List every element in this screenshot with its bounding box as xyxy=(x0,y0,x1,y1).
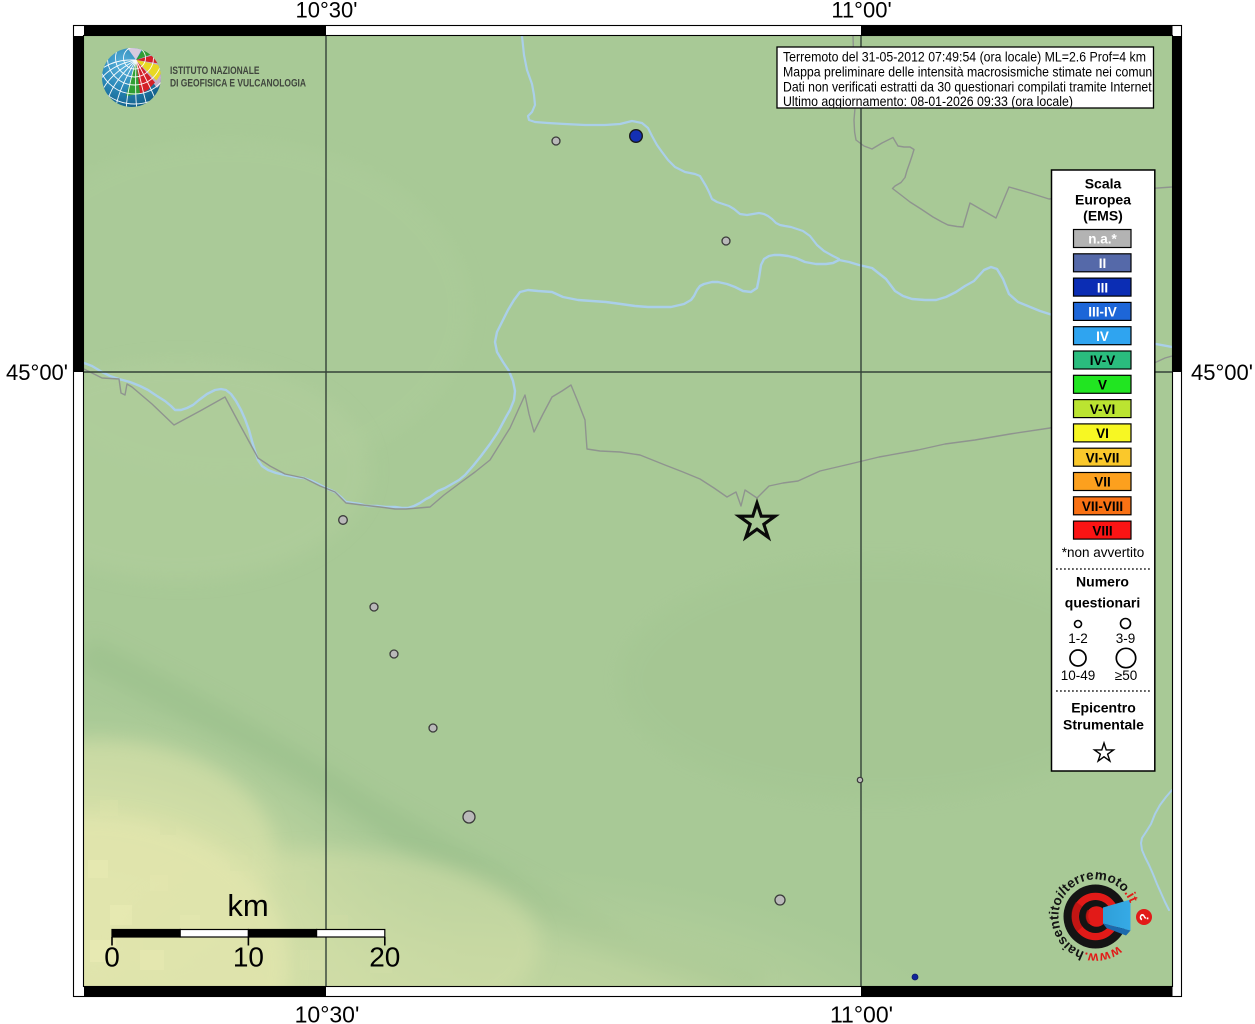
svg-text:Epicentro: Epicentro xyxy=(1071,700,1136,716)
svg-text:IV: IV xyxy=(1096,329,1109,344)
svg-text:11°00': 11°00' xyxy=(831,0,891,23)
svg-text:10: 10 xyxy=(233,942,264,973)
svg-text:10°30': 10°30' xyxy=(296,0,358,23)
svg-text:45°00': 45°00' xyxy=(1191,360,1253,385)
svg-text:1-2: 1-2 xyxy=(1068,631,1088,646)
svg-text:VII: VII xyxy=(1094,475,1111,490)
svg-text:Terremoto del 31-05-2012 07:49: Terremoto del 31-05-2012 07:49:54 (ora l… xyxy=(783,50,1146,65)
svg-text:DI GEOFISICA E VULCANOLOGIA: DI GEOFISICA E VULCANOLOGIA xyxy=(170,77,306,89)
svg-text:V-VI: V-VI xyxy=(1090,402,1116,417)
svg-text:Numero: Numero xyxy=(1076,574,1129,590)
svg-text:11°00': 11°00' xyxy=(830,1002,893,1024)
svg-text:Ultimo aggiornamento: 08-01-20: Ultimo aggiornamento: 08-01-2026 09:33 (… xyxy=(783,94,1073,109)
svg-text:VI-VII: VI-VII xyxy=(1086,450,1120,465)
svg-text:0: 0 xyxy=(104,942,120,973)
svg-text:VII-VIII: VII-VIII xyxy=(1082,499,1123,514)
svg-text:Dati non verificati estratti d: Dati non verificati estratti da 30 quest… xyxy=(783,80,1155,95)
svg-text:3-9: 3-9 xyxy=(1116,631,1136,646)
svg-text:Europea: Europea xyxy=(1075,192,1131,208)
svg-text:III: III xyxy=(1097,280,1108,295)
svg-text:VIII: VIII xyxy=(1092,523,1112,538)
svg-text:*non avvertito: *non avvertito xyxy=(1062,545,1145,560)
svg-text:V: V xyxy=(1098,378,1107,393)
svg-text:(EMS): (EMS) xyxy=(1083,208,1123,224)
svg-text:n.a.*: n.a.* xyxy=(1088,232,1117,247)
svg-text:III-IV: III-IV xyxy=(1088,305,1117,320)
svg-text:II: II xyxy=(1099,256,1107,271)
svg-text:km: km xyxy=(227,888,268,923)
svg-text:IV-V: IV-V xyxy=(1090,353,1116,368)
svg-text:questionari: questionari xyxy=(1065,595,1140,611)
svg-text:Scala: Scala xyxy=(1085,176,1122,192)
svg-text:10-49: 10-49 xyxy=(1061,668,1096,683)
svg-text:45°00': 45°00' xyxy=(6,360,68,385)
svg-text:Strumentale: Strumentale xyxy=(1063,717,1144,733)
svg-text:≥50: ≥50 xyxy=(1115,668,1137,683)
svg-text:ISTITUTO NAZIONALE: ISTITUTO NAZIONALE xyxy=(170,65,260,77)
svg-text:Mappa preliminare delle intens: Mappa preliminare delle intensità macros… xyxy=(783,65,1155,80)
svg-text:10°30': 10°30' xyxy=(295,1002,360,1024)
svg-text:VI: VI xyxy=(1096,426,1109,441)
svg-text:20: 20 xyxy=(369,942,400,973)
